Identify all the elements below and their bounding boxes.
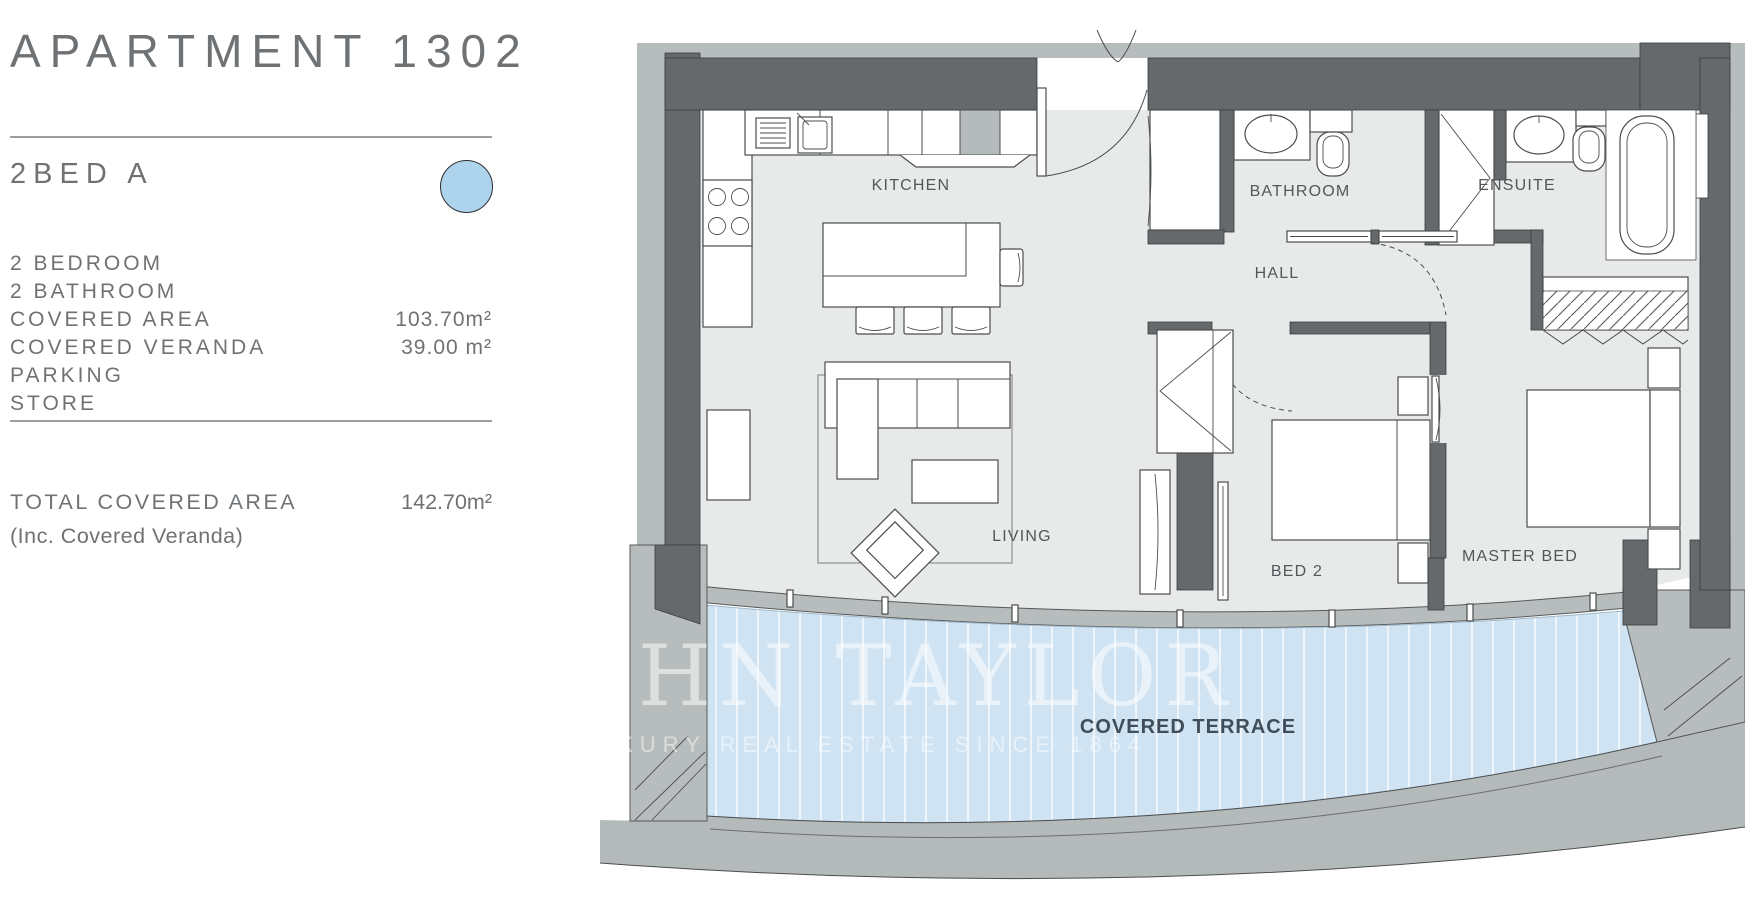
divider: [10, 136, 492, 138]
counter-front: [900, 155, 1030, 167]
total-area-label: TOTAL COVERED AREA: [10, 490, 297, 515]
bed: [1272, 420, 1430, 540]
nightstand: [1648, 348, 1680, 388]
hall-label: HALL: [1255, 265, 1300, 282]
detail-label: STORE: [10, 390, 97, 418]
master-bed-label: MASTER BED: [1462, 548, 1578, 565]
unit-type-label: 2BED A: [10, 158, 154, 191]
stool: [856, 307, 894, 334]
detail-label: COVERED AREA: [10, 306, 212, 334]
toilet-icon: [1317, 132, 1349, 176]
coffee-table: [912, 460, 998, 503]
detail-value: 39.00 m²: [401, 334, 492, 362]
divider: [10, 420, 492, 422]
total-area-row: TOTAL COVERED AREA 142.70m²: [10, 490, 492, 515]
list-item: PARKING: [10, 362, 492, 390]
bed: [1527, 390, 1650, 527]
nightstand: [1648, 529, 1680, 569]
bed2-label: BED 2: [1271, 563, 1323, 580]
page-title: APARTMENT 1302: [10, 24, 530, 78]
living-label: LIVING: [992, 528, 1052, 545]
page: APARTMENT 1302 2BED A 2 BEDROOM 2 BATHRO…: [0, 0, 1745, 915]
list-item: 2 BEDROOM: [10, 250, 492, 278]
list-item: STORE: [10, 390, 492, 418]
total-area-value: 142.70m²: [401, 490, 492, 515]
kitchen-label: KITCHEN: [872, 177, 951, 194]
nightstand: [1398, 543, 1428, 583]
list-item: COVERED AREA 103.70m²: [10, 306, 492, 334]
nightstand: [1398, 377, 1428, 415]
unit-color-badge: [440, 160, 493, 213]
unit-details-list: 2 BEDROOM 2 BATHROOM COVERED AREA 103.70…: [10, 250, 492, 418]
sideboard: [707, 410, 750, 500]
stool: [904, 307, 942, 334]
left-panel: APARTMENT 1302 2BED A 2 BEDROOM 2 BATHRO…: [0, 0, 560, 915]
detail-label: 2 BEDROOM: [10, 250, 163, 278]
floor-plan: HN TAYLOR LUXURY REAL ESTATE SINCE 1864 …: [570, 30, 1745, 905]
entry-closet: [1148, 110, 1220, 230]
detail-label: 2 BATHROOM: [10, 278, 177, 306]
kitchen-island: [823, 223, 1000, 307]
wardrobe: [1157, 330, 1233, 453]
ensuite-label: ENSUITE: [1478, 177, 1556, 194]
detail-label: PARKING: [10, 362, 124, 390]
list-item: COVERED VERANDA 39.00 m²: [10, 334, 492, 362]
total-area-note: (Inc. Covered Veranda): [10, 524, 243, 549]
bathroom-label: BATHROOM: [1250, 183, 1351, 200]
watermark-tagline: LUXURY REAL ESTATE SINCE 1864: [576, 732, 1147, 757]
stool: [952, 307, 990, 334]
covered-terrace-label: COVERED TERRACE: [1080, 716, 1296, 738]
sliding-door: [1140, 470, 1170, 594]
detail-value: 103.70m²: [395, 306, 492, 334]
watermark-brand: HN TAYLOR: [638, 627, 1236, 725]
list-item: 2 BATHROOM: [10, 278, 492, 306]
toilet-icon: [1573, 127, 1605, 171]
detail-label: COVERED VERANDA: [10, 334, 266, 362]
